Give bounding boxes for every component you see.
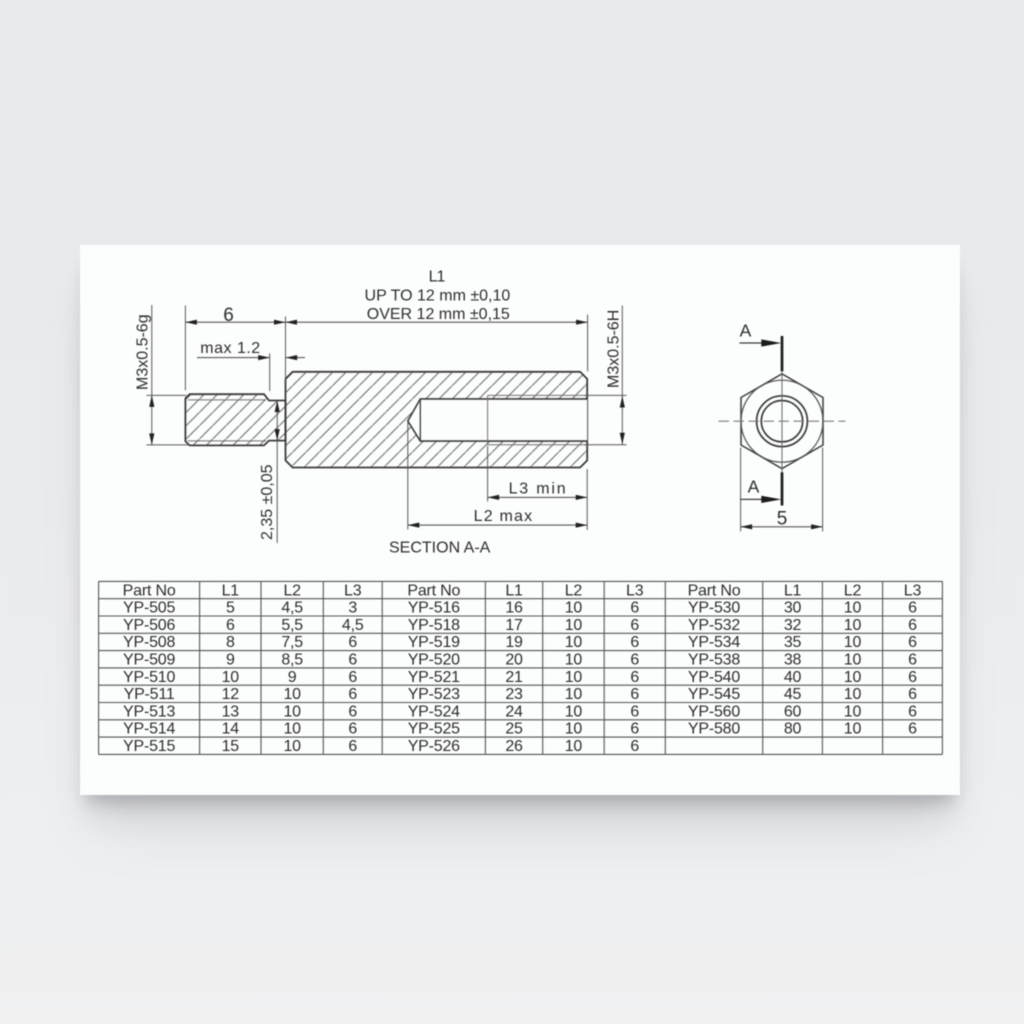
svg-text:6: 6	[908, 634, 917, 651]
svg-text:YP-510: YP-510	[123, 669, 175, 686]
svg-text:60: 60	[784, 703, 802, 720]
svg-text:YP-545: YP-545	[688, 686, 740, 703]
svg-text:30: 30	[784, 600, 802, 617]
svg-text:25: 25	[505, 721, 523, 738]
svg-text:YP-530: YP-530	[688, 600, 740, 617]
svg-text:L1: L1	[784, 582, 802, 599]
svg-text:80: 80	[784, 721, 802, 738]
svg-text:L2 max: L2 max	[474, 508, 534, 525]
svg-text:YP-518: YP-518	[408, 617, 460, 634]
svg-text:10: 10	[844, 669, 862, 686]
svg-text:YP-580: YP-580	[688, 721, 740, 738]
svg-text:10: 10	[565, 738, 583, 755]
svg-text:17: 17	[505, 617, 523, 634]
svg-text:35: 35	[784, 634, 802, 651]
svg-text:YP-511: YP-511	[124, 686, 175, 703]
svg-text:6: 6	[630, 617, 639, 634]
svg-text:45: 45	[784, 686, 802, 703]
svg-text:9: 9	[288, 669, 297, 686]
svg-text:6: 6	[348, 721, 357, 738]
svg-text:6: 6	[630, 652, 639, 669]
svg-text:20: 20	[505, 652, 523, 669]
svg-text:32: 32	[784, 617, 802, 634]
svg-text:10: 10	[222, 669, 240, 686]
svg-text:YP-532: YP-532	[688, 617, 740, 634]
svg-text:6: 6	[348, 738, 357, 755]
svg-text:L3: L3	[344, 582, 362, 599]
svg-text:6: 6	[348, 669, 357, 686]
svg-text:6: 6	[630, 686, 639, 703]
svg-text:6: 6	[348, 703, 357, 720]
svg-text:13: 13	[222, 703, 240, 720]
svg-text:6: 6	[908, 669, 917, 686]
svg-text:10: 10	[565, 600, 583, 617]
svg-text:6: 6	[348, 652, 357, 669]
svg-text:10: 10	[844, 721, 862, 738]
svg-text:6: 6	[908, 617, 917, 634]
svg-text:A: A	[748, 477, 760, 497]
svg-text:10: 10	[844, 686, 862, 703]
svg-text:9: 9	[226, 652, 235, 669]
svg-text:6: 6	[908, 703, 917, 720]
svg-text:YP-513: YP-513	[123, 703, 175, 720]
svg-text:YP-560: YP-560	[688, 703, 740, 720]
svg-text:10: 10	[283, 703, 301, 720]
svg-text:21: 21	[505, 669, 523, 686]
svg-text:6: 6	[908, 721, 917, 738]
svg-text:6: 6	[226, 617, 235, 634]
svg-text:6: 6	[630, 634, 639, 651]
svg-text:12: 12	[222, 686, 240, 703]
svg-text:10: 10	[565, 686, 583, 703]
svg-text:YP-506: YP-506	[123, 617, 175, 634]
svg-text:23: 23	[505, 686, 523, 703]
svg-text:YP-523: YP-523	[408, 686, 460, 703]
svg-text:15: 15	[222, 738, 240, 755]
svg-text:8: 8	[226, 634, 235, 651]
svg-text:L3 min: L3 min	[509, 481, 568, 498]
svg-text:6: 6	[348, 634, 357, 651]
svg-text:YP-509: YP-509	[123, 652, 175, 669]
svg-text:10: 10	[844, 652, 862, 669]
svg-text:YP-515: YP-515	[123, 738, 175, 755]
svg-text:Part No: Part No	[688, 582, 741, 599]
svg-text:10: 10	[283, 686, 301, 703]
svg-text:6: 6	[223, 305, 234, 326]
svg-text:Part No: Part No	[123, 582, 176, 599]
svg-text:SECTION A-A: SECTION A-A	[389, 540, 491, 557]
svg-text:YP-526: YP-526	[408, 738, 460, 755]
svg-text:10: 10	[565, 721, 583, 738]
svg-text:26: 26	[505, 738, 523, 755]
svg-text:YP-514: YP-514	[123, 721, 175, 738]
svg-text:14: 14	[222, 721, 240, 738]
svg-text:6: 6	[908, 652, 917, 669]
svg-text:YP-534: YP-534	[688, 634, 740, 651]
svg-text:7,5: 7,5	[281, 634, 303, 651]
svg-text:10: 10	[565, 634, 583, 651]
svg-text:YP-540: YP-540	[688, 669, 740, 686]
svg-text:YP-516: YP-516	[408, 600, 460, 617]
svg-text:M3x0.5-6H: M3x0.5-6H	[606, 310, 623, 388]
svg-text:10: 10	[844, 703, 862, 720]
svg-text:M3x0.5-6g: M3x0.5-6g	[135, 314, 152, 390]
svg-text:24: 24	[505, 703, 523, 720]
svg-text:UP TO 12 mm ±0,10: UP TO 12 mm ±0,10	[365, 288, 511, 305]
svg-text:16: 16	[505, 600, 523, 617]
svg-text:L2: L2	[565, 582, 583, 599]
svg-text:10: 10	[565, 703, 583, 720]
svg-text:L1: L1	[505, 582, 523, 599]
svg-text:2,35 ±0,05: 2,35 ±0,05	[259, 464, 276, 540]
svg-text:5: 5	[226, 600, 235, 617]
svg-text:10: 10	[565, 617, 583, 634]
svg-text:6: 6	[908, 686, 917, 703]
svg-text:10: 10	[844, 600, 862, 617]
svg-text:L1: L1	[222, 582, 240, 599]
svg-text:40: 40	[784, 669, 802, 686]
svg-text:8,5: 8,5	[281, 652, 303, 669]
svg-text:6: 6	[348, 686, 357, 703]
svg-text:19: 19	[505, 634, 523, 651]
svg-text:10: 10	[844, 634, 862, 651]
svg-text:A: A	[740, 321, 752, 341]
svg-text:10: 10	[844, 617, 862, 634]
svg-text:Part No: Part No	[407, 582, 460, 599]
svg-text:10: 10	[565, 669, 583, 686]
svg-text:6: 6	[630, 669, 639, 686]
svg-text:OVER 12 mm ±0,15: OVER 12 mm ±0,15	[367, 306, 510, 323]
svg-text:10: 10	[565, 652, 583, 669]
svg-text:6: 6	[630, 600, 639, 617]
svg-text:YP-505: YP-505	[123, 600, 175, 617]
svg-text:YP-521: YP-521	[408, 669, 460, 686]
svg-text:6: 6	[630, 738, 639, 755]
svg-text:6: 6	[908, 600, 917, 617]
svg-text:L3: L3	[904, 582, 922, 599]
svg-text:YP-520: YP-520	[408, 652, 460, 669]
svg-text:4,5: 4,5	[342, 617, 364, 634]
svg-text:YP-524: YP-524	[408, 703, 460, 720]
svg-text:YP-525: YP-525	[408, 721, 460, 738]
svg-text:L2: L2	[844, 582, 862, 599]
svg-text:3: 3	[348, 600, 357, 617]
svg-text:L3: L3	[626, 582, 644, 599]
svg-text:YP-538: YP-538	[688, 652, 740, 669]
svg-text:L1: L1	[429, 269, 446, 286]
svg-text:10: 10	[283, 721, 301, 738]
svg-text:5,5: 5,5	[281, 617, 303, 634]
svg-text:5: 5	[777, 509, 788, 530]
svg-text:10: 10	[283, 738, 301, 755]
svg-text:38: 38	[784, 652, 802, 669]
svg-text:6: 6	[630, 721, 639, 738]
svg-text:4,5: 4,5	[281, 600, 303, 617]
svg-text:YP-519: YP-519	[408, 634, 460, 651]
svg-text:6: 6	[630, 703, 639, 720]
svg-text:YP-508: YP-508	[123, 634, 175, 651]
svg-text:max 1.2: max 1.2	[200, 340, 260, 357]
svg-text:L2: L2	[283, 582, 301, 599]
